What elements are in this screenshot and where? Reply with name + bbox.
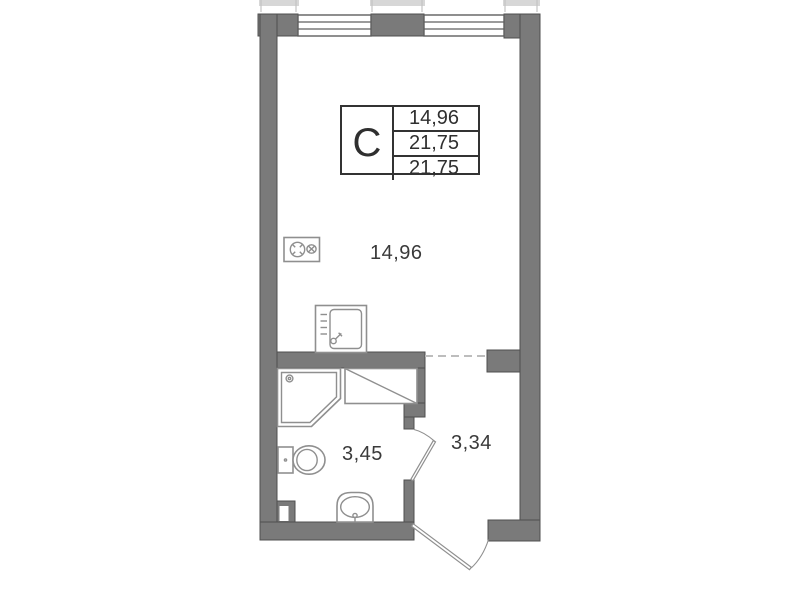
wall-right [520,14,540,541]
stove-icon [284,238,320,262]
unit-info-table: С 14,96 21,75 21,75 [340,105,480,175]
wall-bathroom-right-upper [417,368,425,406]
washbasin-icon [337,493,373,523]
wall-bathroom-top [277,352,425,368]
window-icon-right [424,15,504,36]
counter-icon [345,369,417,404]
floor-plan-drawing [0,0,799,600]
unit-area-value-1: 14,96 [394,107,478,130]
wall-right-mid-stub [487,350,520,372]
unit-type-label: С [342,107,394,180]
wall-bathroom-right-step [404,403,425,417]
wall-left [260,14,277,540]
wall-bottom [260,522,414,540]
wall-bathroom-door-jamb-bottom [404,480,414,522]
unit-area-value-3: 21,75 [394,155,478,180]
wall-bottom-right-stub [488,520,540,541]
hallway-area-label: 3,34 [451,432,492,455]
living-area-label: 14,96 [370,242,423,265]
bathroom-door-icon [411,430,436,481]
entrance-door-icon [412,524,489,570]
unit-area-value-2: 21,75 [394,130,478,155]
duct-shaft-opening [280,506,289,521]
wall-window-pier [371,14,424,36]
bathroom-area-label: 3,45 [342,443,383,466]
kitchen-sink-icon [316,306,367,353]
shower-icon [278,369,341,427]
floor-plan: 14,96 3,45 3,34 С 14,96 21,75 21,75 [0,0,799,600]
toilet-icon [278,446,325,474]
cropped-marks [259,0,540,12]
window-icon-left [298,15,371,36]
wall-bathroom-door-jamb-top [404,417,414,429]
